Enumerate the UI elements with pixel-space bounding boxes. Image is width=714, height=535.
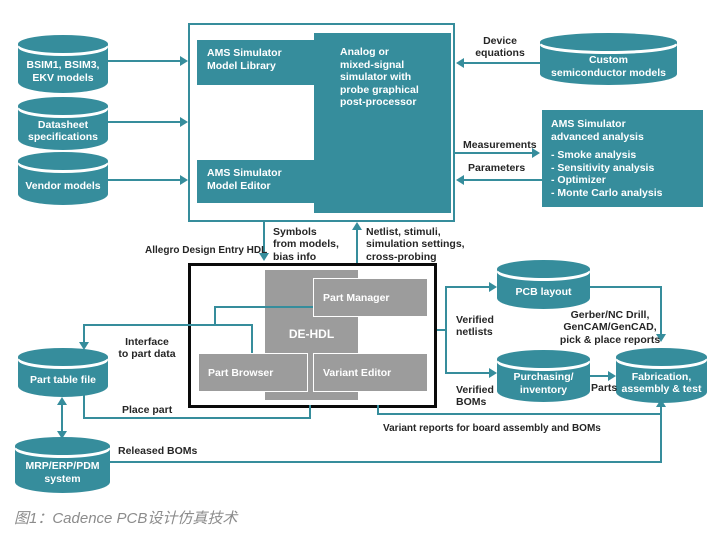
arrow-vendor-to-simulator [108, 179, 182, 181]
released-boms-label: Released BOMs [118, 445, 197, 457]
variant-editor-box: Variant Editor [313, 353, 428, 392]
arrow-verified-netlists [445, 286, 489, 288]
variant-reports-label: Variant reports for board assembly and B… [383, 423, 601, 435]
cylinder-label: Custom semiconductor models [542, 49, 675, 84]
cylinder-label: Vendor models [20, 168, 106, 204]
arrowhead-right [180, 175, 188, 185]
place-part-label: Place part [122, 404, 172, 416]
device-equations-label: Device equations [462, 35, 538, 60]
arrow-datasheet-to-simulator [108, 121, 182, 123]
arrowhead-up [352, 222, 362, 230]
cylinder-label: Datasheet specifications [20, 113, 106, 149]
arrowhead-right [180, 117, 188, 127]
arrow-netlist-up [356, 230, 358, 263]
gerber-label: Gerber/NC Drill, GenCAM/GenCAD, pick & p… [555, 309, 665, 346]
cylinder-label: Purchasing/ inventory [499, 366, 588, 401]
verified-boms-label: Verified BOMs [456, 384, 494, 409]
arrowhead-right [489, 282, 497, 292]
parts-label: Parts [591, 382, 617, 394]
arrow-bsim-to-simulator [108, 60, 182, 62]
verified-netlists-label: Verified netlists [456, 314, 494, 339]
connector-interface-h [83, 324, 252, 326]
part-table-cylinder: Part table file [18, 348, 108, 397]
ams-advanced-analysis-box: AMS Simulator advanced analysis - Smoke … [542, 110, 703, 207]
fabrication-cylinder: Fabrication, assembly & test [616, 348, 707, 403]
connector-pcb-out-h [590, 286, 662, 288]
cylinder-label: Part table file [20, 364, 106, 396]
datasheet-cylinder: Datasheet specifications [18, 97, 108, 150]
custom-models-cylinder: Custom semiconductor models [540, 33, 677, 85]
arrow-parts [590, 375, 609, 377]
vendor-models-cylinder: Vendor models [18, 152, 108, 205]
cylinder-label: MRP/ERP/PDM system [17, 453, 108, 492]
connector-variant-h [377, 413, 662, 415]
cylinder-label: PCB layout [499, 276, 588, 308]
arrowhead-up [57, 397, 67, 405]
connector-right-v [445, 286, 447, 374]
pcb-layout-cylinder: PCB layout [497, 260, 590, 309]
connector-placepart-h [83, 417, 311, 419]
arrowhead-left [456, 175, 464, 185]
connector-bidirectional-v [61, 404, 63, 433]
measurements-label: Measurements [463, 139, 537, 151]
part-browser-box: Part Browser [198, 353, 308, 392]
arrowhead-right [180, 56, 188, 66]
pcb-design-flow-diagram: AMS Simulator Model Library Analog or mi… [0, 0, 714, 535]
ams-model-library-box: AMS Simulator Model Library [197, 40, 331, 85]
parameters-label: Parameters [468, 162, 525, 174]
bsim-models-cylinder: BSIM1, BSIM3, EKV models [18, 35, 108, 93]
ams-model-editor-box: AMS Simulator Model Editor [197, 160, 331, 203]
cylinder-label: Fabrication, assembly & test [618, 364, 705, 402]
connector-placepart-v1 [83, 395, 85, 419]
figure-caption: 图1：Cadence PCB设计仿真技术 [14, 507, 237, 528]
connector-placepart-v2 [309, 405, 311, 419]
analog-simulator-box: Analog or mixed-signal simulator with pr… [314, 33, 451, 213]
analysis-items: - Smoke analysis - Sensitivity analysis … [551, 149, 699, 199]
arrow-measurements [455, 152, 532, 154]
connector-to-parttable-v [83, 324, 85, 343]
arrow-device-equations [464, 62, 540, 64]
arrowhead-right [489, 368, 497, 378]
arrowhead-right [608, 371, 616, 381]
connector-to-partbrowser-v [251, 324, 253, 353]
part-manager-box: Part Manager [313, 278, 428, 317]
allegro-design-entry-label: Allegro Design Entry HDL [145, 245, 267, 257]
netlist-label: Netlist, stimuli, simulation settings, c… [366, 226, 465, 263]
arrowhead-down [79, 342, 89, 350]
arrowhead-up [656, 399, 666, 407]
analysis-title: AMS Simulator advanced analysis [551, 118, 699, 143]
mrp-system-cylinder: MRP/ERP/PDM system [15, 437, 110, 493]
de-hdl-label: DE-HDL [265, 327, 358, 341]
connector-fab-up-v [660, 407, 662, 463]
connector-partmanager-v [214, 306, 216, 326]
connector-partmanager-h [215, 306, 313, 308]
arrowhead-down [57, 431, 67, 439]
connector-released-boms-h [110, 461, 662, 463]
arrow-parameters [464, 179, 542, 181]
arrow-verified-boms [445, 372, 489, 374]
interface-label: Interface to part data [111, 336, 183, 361]
cylinder-label: BSIM1, BSIM3, EKV models [20, 51, 106, 92]
purchasing-cylinder: Purchasing/ inventory [497, 350, 590, 402]
symbols-label: Symbols from models, bias info [273, 226, 339, 263]
